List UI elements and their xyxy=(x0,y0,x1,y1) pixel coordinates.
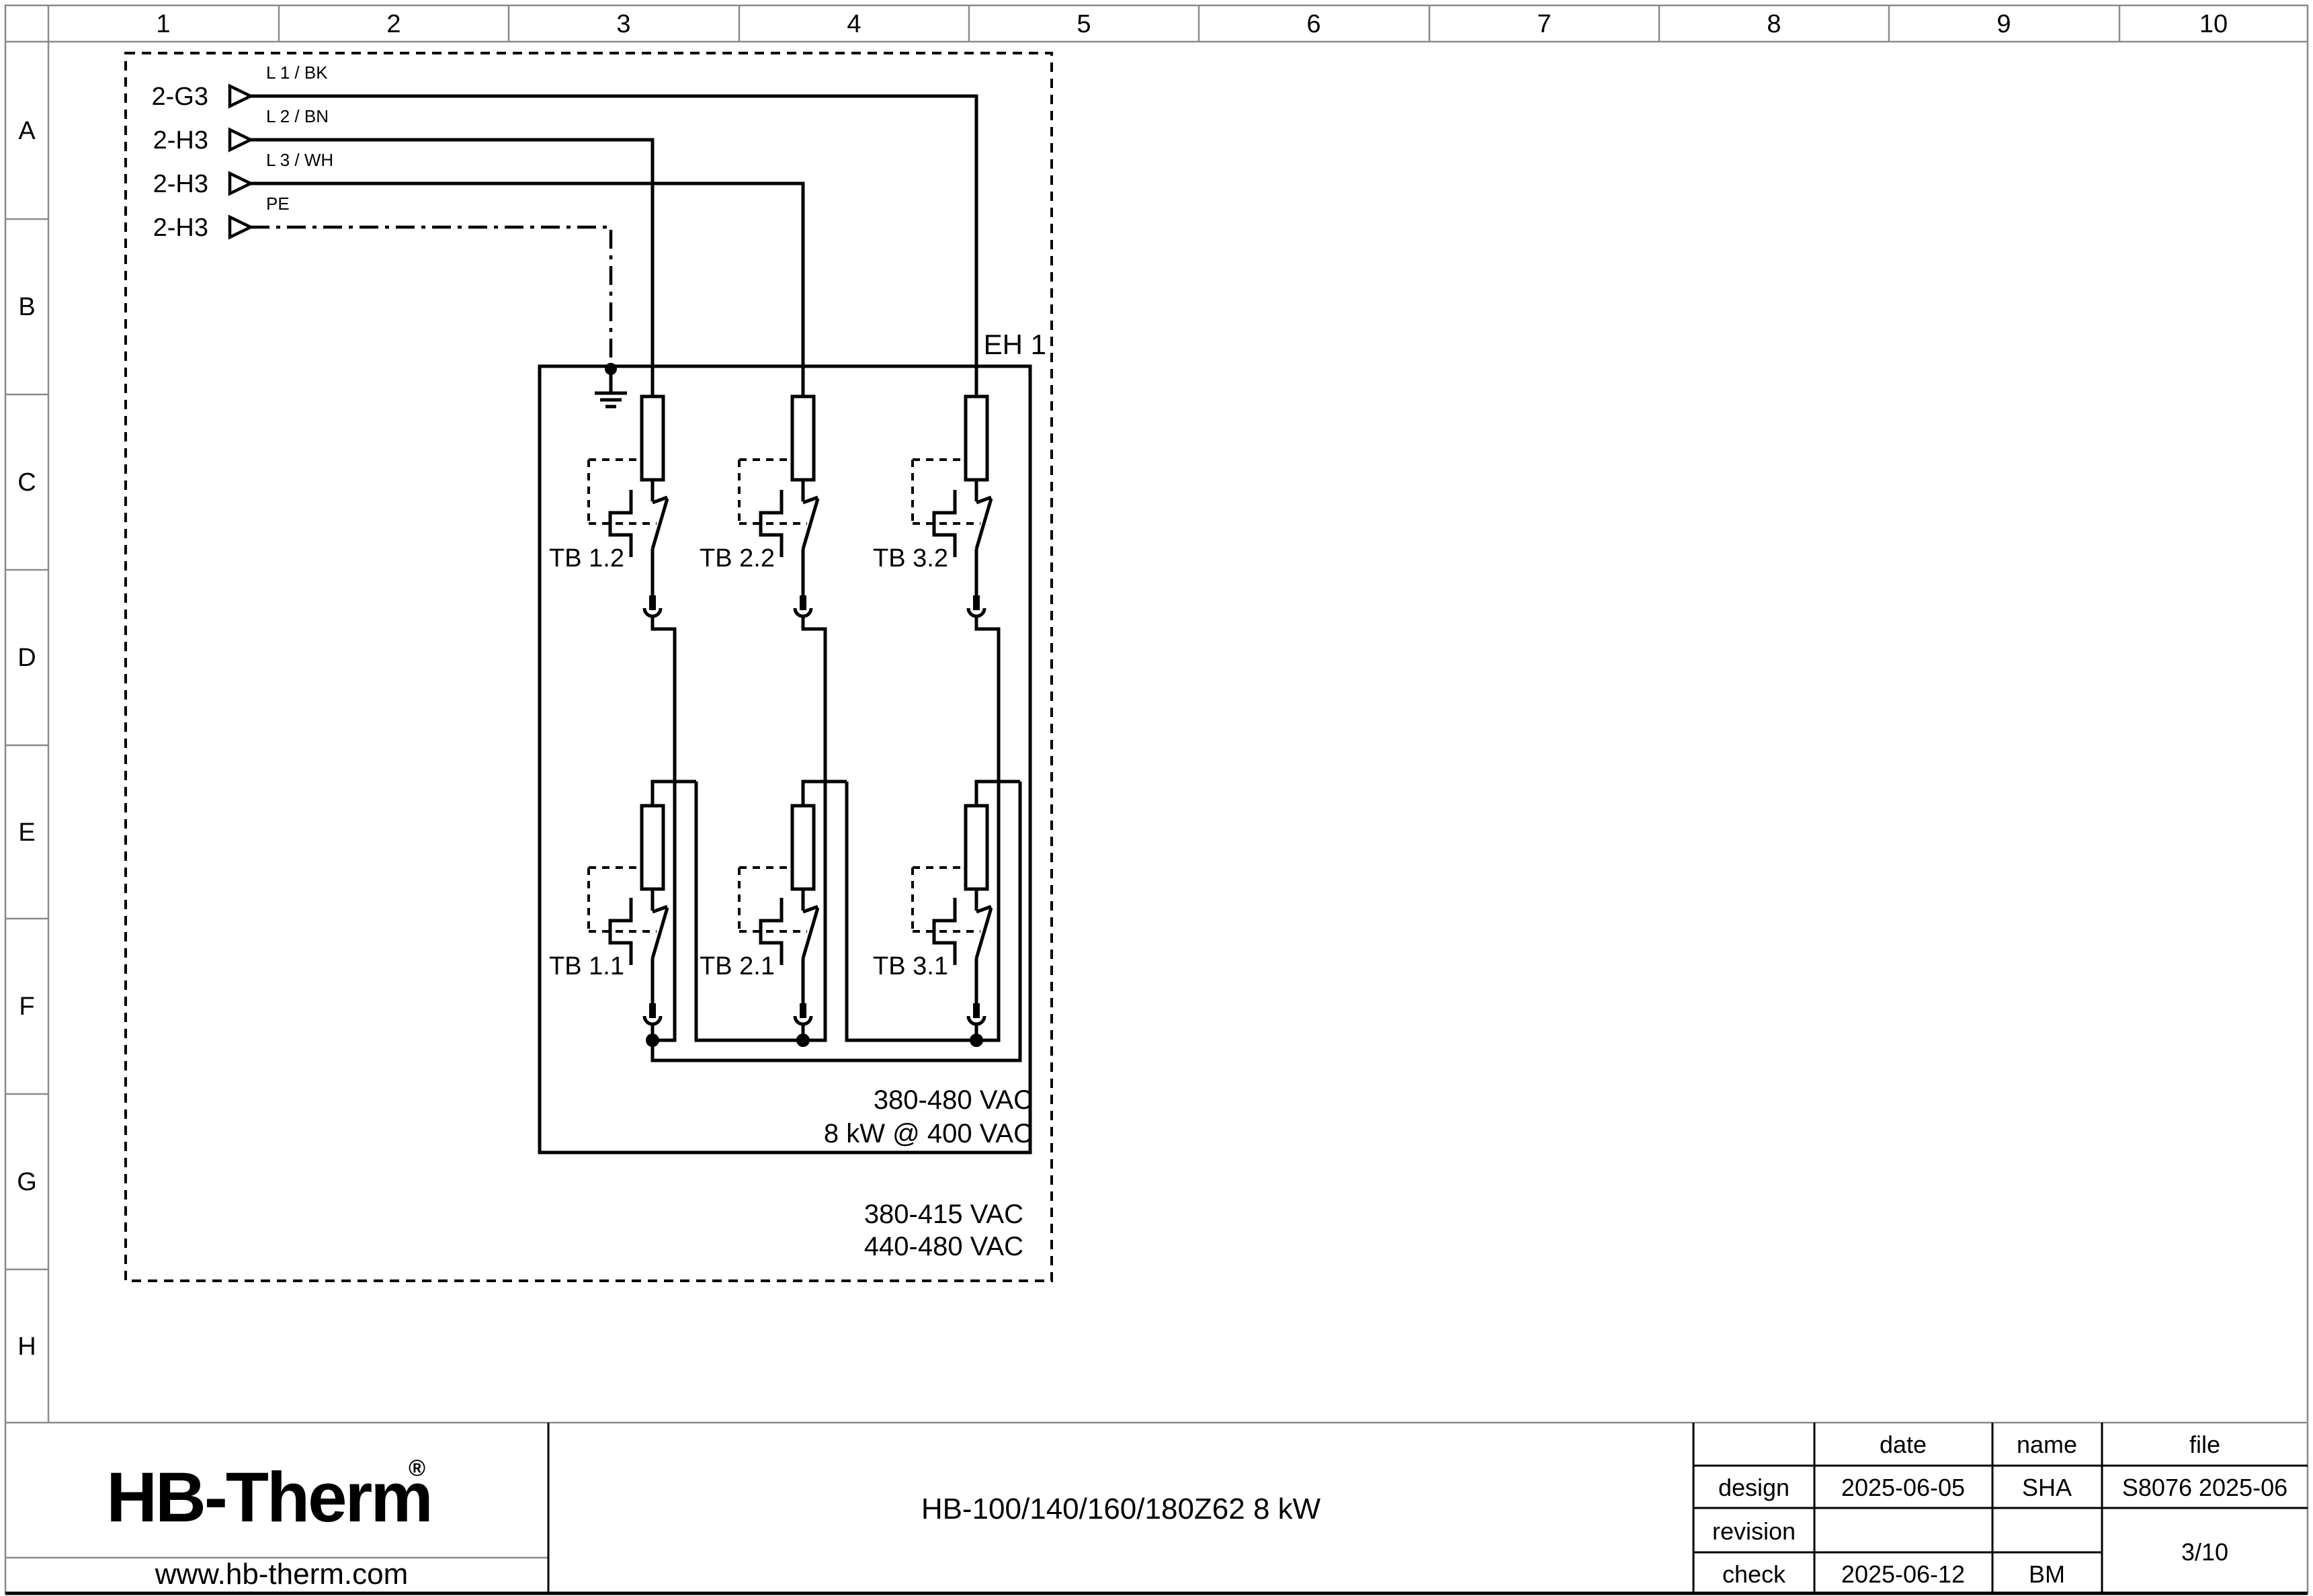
check-date: 2025-06-12 xyxy=(1841,1560,1965,1588)
junction-dot xyxy=(970,1034,983,1047)
feed-arrow-icon xyxy=(230,130,251,150)
row-label: C xyxy=(17,468,36,497)
check-name: BM xyxy=(2029,1560,2065,1588)
website-link[interactable]: www.hb-therm.com xyxy=(155,1558,409,1591)
tb-label: TB 3.2 xyxy=(873,544,948,573)
heater-element xyxy=(966,396,987,480)
table-header-file: file xyxy=(2189,1431,2220,1458)
heater-enclosure-box xyxy=(540,366,1030,1152)
column-label: 9 xyxy=(1996,10,2011,38)
row-label: D xyxy=(17,644,36,672)
feed-ref-label: 2-H3 xyxy=(153,126,208,155)
feed-ref-label: 2-H3 xyxy=(153,214,208,242)
row-label: B xyxy=(18,293,35,321)
drawing-canvas: 1 2 3 4 5 6 7 8 9 10 A B C D E F G H xyxy=(0,0,2313,1596)
feed-ref-label: 2-G3 xyxy=(152,83,208,111)
connector-pin-icon xyxy=(649,595,656,610)
column-label: 8 xyxy=(1767,10,1781,38)
column-label: 7 xyxy=(1537,10,1551,38)
enclosure-label: EH 1 xyxy=(984,329,1046,360)
connector-pin-icon xyxy=(649,1003,656,1018)
drawing-frame xyxy=(5,5,2308,1593)
row-label: E xyxy=(18,818,35,847)
pe-wire xyxy=(251,227,611,366)
junction-dot xyxy=(796,1034,810,1047)
connector-pin-icon xyxy=(800,595,806,610)
heater-branch-3 xyxy=(913,396,1020,1040)
table-header-date: date xyxy=(1880,1431,1927,1458)
tb-label: TB 2.2 xyxy=(700,544,775,573)
page-border xyxy=(5,5,2308,1593)
column-label: 10 xyxy=(2199,10,2228,38)
column-label: 1 xyxy=(156,10,170,38)
wire-name-label: PE xyxy=(266,194,290,214)
heater-element xyxy=(642,806,663,889)
feed-arrow-icon xyxy=(230,86,251,106)
wire-name-label: L 3 / WH xyxy=(266,150,333,170)
heater-element xyxy=(642,396,663,480)
thermal-switch-blade xyxy=(976,499,991,549)
wire-name-label: L 1 / BK xyxy=(266,62,328,83)
thermal-switch-blade xyxy=(803,499,818,549)
design-file: S8076 2025-06 xyxy=(2122,1474,2287,1501)
table-row-label-revision: revision xyxy=(1712,1517,1796,1545)
tb-label: TB 1.1 xyxy=(549,952,624,980)
heater-element xyxy=(792,806,814,889)
heater-branch-2 xyxy=(739,396,847,1040)
tb-label: TB 3.1 xyxy=(873,952,948,980)
wire-name-label: L 2 / BN xyxy=(266,106,329,126)
connector-pin-icon xyxy=(973,1003,980,1018)
page-number: 3/10 xyxy=(2181,1538,2228,1566)
table-row-label-check: check xyxy=(1722,1560,1786,1588)
row-label: H xyxy=(17,1333,36,1361)
feed-arrows xyxy=(230,86,251,237)
heater-element xyxy=(966,806,987,889)
feed-arrow-icon xyxy=(230,217,251,237)
ground-icon xyxy=(595,363,627,407)
tb-label: TB 1.2 xyxy=(549,544,624,573)
page: { "ruler": { "columns": ["1","2","3","4"… xyxy=(0,0,2313,1596)
hb-therm-logo: HB-Therm ® xyxy=(106,1456,431,1537)
heater-branch-1 xyxy=(589,396,696,1040)
feed-arrow-icon xyxy=(230,173,251,194)
row-label: F xyxy=(19,993,34,1021)
junction-dot xyxy=(646,1034,659,1047)
table-header-name: name xyxy=(2017,1431,2077,1458)
row-label: G xyxy=(17,1168,37,1196)
thermal-switch-blade xyxy=(653,908,667,958)
row-label: A xyxy=(18,117,36,145)
heater-element xyxy=(792,396,814,480)
column-label: 2 xyxy=(386,10,401,38)
voltage-range-text: 440-480 VAC xyxy=(864,1232,1023,1261)
voltage-range-text: 380-415 VAC xyxy=(864,1200,1023,1229)
connector-pin-icon xyxy=(973,595,980,610)
doc-title: HB-100/140/160/180Z62 8 kW xyxy=(921,1493,1321,1525)
column-label: 4 xyxy=(847,10,861,38)
tb-label: TB 2.1 xyxy=(700,952,775,980)
design-date: 2025-06-05 xyxy=(1841,1474,1965,1501)
thermal-switch-blade xyxy=(976,908,991,958)
connector-pin-icon xyxy=(800,1003,806,1018)
rating-text: 8 kW @ 400 VAC xyxy=(824,1119,1033,1148)
table-row-label-design: design xyxy=(1718,1474,1790,1501)
column-label: 3 xyxy=(616,10,630,38)
feed-ref-label: 2-H3 xyxy=(153,170,208,198)
rating-text: 380-480 VAC xyxy=(874,1085,1033,1115)
thermal-switch-blade xyxy=(653,499,667,549)
column-label: 6 xyxy=(1306,10,1320,38)
feed-wires xyxy=(251,96,976,396)
column-label: 5 xyxy=(1077,10,1091,38)
logo-text: HB-Therm xyxy=(106,1458,431,1537)
design-name: SHA xyxy=(2022,1474,2072,1501)
thermal-switch-blade xyxy=(803,908,818,958)
logo-registered-icon: ® xyxy=(409,1456,425,1481)
